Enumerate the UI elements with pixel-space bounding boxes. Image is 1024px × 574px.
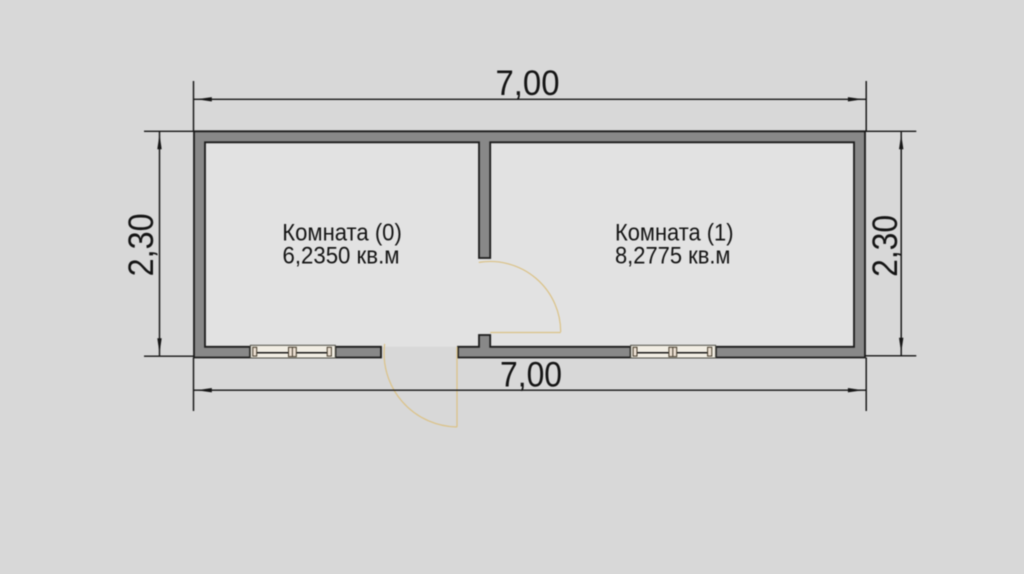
svg-text:8,2775 кв.м: 8,2775 кв.м xyxy=(615,242,731,269)
svg-text:7,00: 7,00 xyxy=(496,64,560,103)
svg-text:7,00: 7,00 xyxy=(500,355,562,394)
svg-text:2,30: 2,30 xyxy=(122,213,161,276)
svg-text:2,30: 2,30 xyxy=(866,215,905,277)
svg-text:6,2350 кв.м: 6,2350 кв.м xyxy=(283,242,400,269)
